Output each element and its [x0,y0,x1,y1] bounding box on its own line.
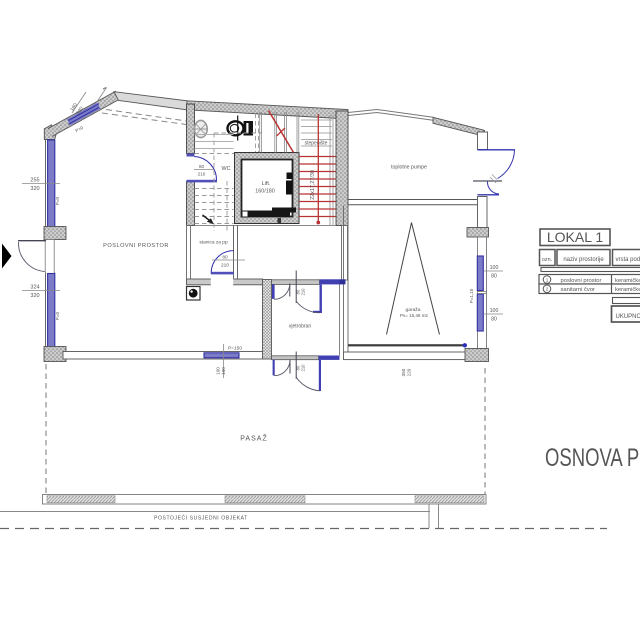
svg-text:stanica za pp: stanica za pp [199,239,228,245]
svg-text:210: 210 [221,262,229,268]
svg-text:80: 80 [491,317,497,323]
svg-text:1: 1 [546,277,549,282]
svg-text:toplotne pumpe: toplotne pumpe [391,164,427,170]
svg-text:255: 255 [30,178,39,184]
svg-text:OSNOVA PRIZEMLJA: OSNOVA PRIZEMLJA [545,443,640,471]
svg-text:WC: WC [222,166,231,172]
svg-text:2: 2 [546,287,549,292]
svg-text:80: 80 [491,274,497,280]
svg-text:210: 210 [301,364,306,372]
svg-text:vjetrobran: vjetrobran [289,324,311,330]
svg-text:320: 320 [30,186,39,192]
svg-text:PASAŽ: PASAŽ [240,434,267,443]
svg-text:ozn.: ozn. [542,257,552,263]
svg-text:Pv= 16,46 m2: Pv= 16,46 m2 [400,313,428,318]
svg-text:LOKAL 1: LOKAL 1 [547,229,604,245]
svg-text:vrsta pod: vrsta pod [616,257,640,263]
svg-text:160/180: 160/180 [255,189,275,195]
svg-text:100: 100 [221,367,226,375]
svg-text:sanitarni čvor: sanitarni čvor [561,287,596,293]
svg-text:naziv prostorije: naziv prostorije [563,257,604,263]
svg-text:poslovni prostor: poslovni prostor [561,278,602,284]
svg-text:UKUPNO: UKUPNO [616,314,640,320]
svg-text:80: 80 [199,164,205,169]
svg-text:P=0: P=0 [55,196,60,205]
svg-text:keramičke pl.: keramičke pl. [615,278,640,284]
svg-text:POSTOJEĆI SUSJEDNI OBJEKAT: POSTOJEĆI SUSJEDNI OBJEKAT [154,515,248,522]
svg-text:P=0: P=0 [55,311,60,320]
svg-text:22x17,27/30: 22x17,27/30 [310,170,316,200]
svg-text:100: 100 [490,308,499,314]
svg-text:320: 320 [30,293,39,299]
svg-text:P=1,10: P=1,10 [469,288,474,303]
svg-text:350: 350 [401,368,406,376]
svg-text:210: 210 [198,172,206,177]
svg-text:stepenište: stepenište [305,140,328,146]
svg-text:keramičke pl.: keramičke pl. [615,287,640,293]
svg-text:POSLOVNI PROSTOR: POSLOVNI PROSTOR [103,243,169,249]
svg-text:220: 220 [407,368,412,376]
svg-text:100: 100 [216,367,221,375]
svg-text:P=150: P=150 [228,346,242,352]
svg-text:324: 324 [30,285,39,291]
svg-text:Lift.: Lift. [262,181,271,187]
svg-text:80: 80 [222,254,228,260]
svg-text:100: 100 [490,265,499,271]
svg-text:210: 210 [301,288,306,296]
